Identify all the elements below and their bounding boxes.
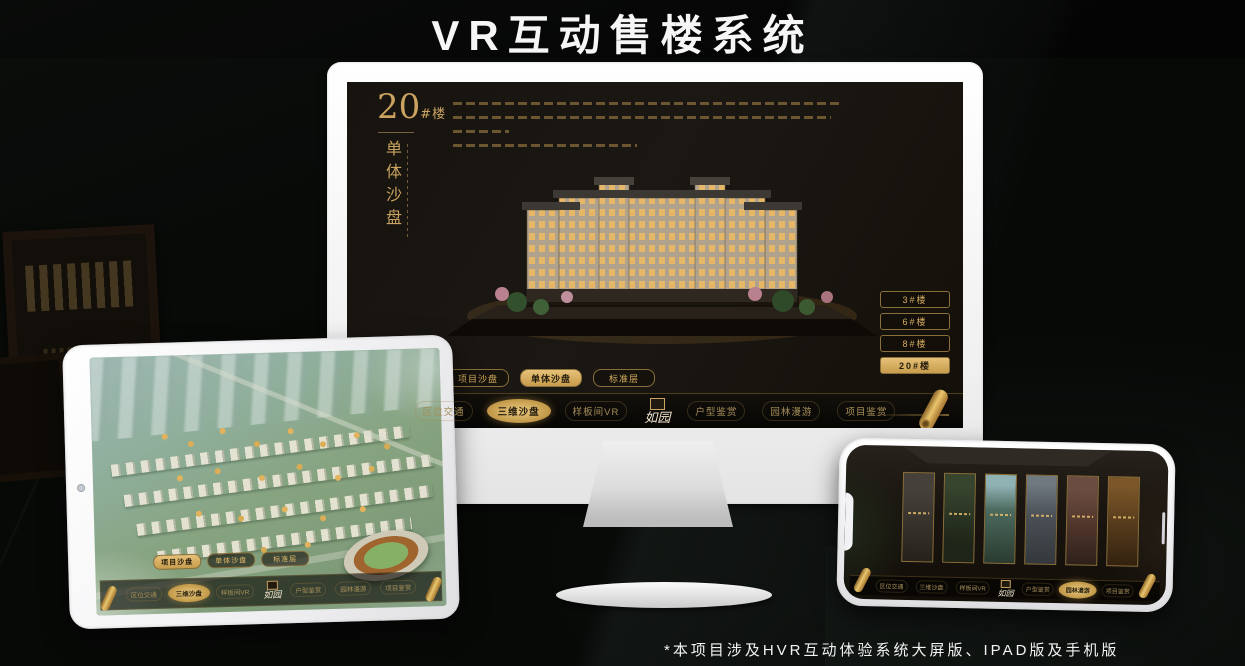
heading-rule xyxy=(378,132,414,133)
nav-item-3d-sandbox[interactable]: 三维沙盘 xyxy=(171,586,207,601)
floor-button-group: 3#楼 6#楼 8#楼 20#楼 xyxy=(880,291,950,374)
tablet-tab-single-sandbox[interactable]: 单体沙盘 xyxy=(207,552,255,568)
phone-notch xyxy=(844,493,853,551)
tablet-device: 项目沙盘 单体沙盘 标准层 区位交通 三维沙盘 样板间VR 如园 户型鉴赏 园林… xyxy=(62,335,460,630)
gallery-card-livingroom[interactable] xyxy=(942,473,976,564)
gallery-card-facade[interactable] xyxy=(1065,475,1099,566)
nav-item-garden-tour[interactable]: 园林漫游 xyxy=(762,401,820,421)
floor-button-3[interactable]: 3#楼 xyxy=(880,291,950,308)
seal-icon xyxy=(1001,579,1011,587)
tablet-screen: 项目沙盘 单体沙盘 标准层 区位交通 三维沙盘 样板间VR 如园 户型鉴赏 园林… xyxy=(89,348,446,616)
gallery-card-interior[interactable] xyxy=(901,472,935,563)
tab-standard-floor[interactable]: 标准层 xyxy=(593,369,655,387)
nav-item-showroom-vr[interactable]: 样板间VR xyxy=(955,581,990,595)
gallery-card-building[interactable] xyxy=(1024,474,1058,565)
building-heading: 20#楼 xyxy=(377,90,446,124)
floor-button-8[interactable]: 8#楼 xyxy=(880,335,950,352)
brand-logo: 如园 xyxy=(263,580,282,600)
heading-vertical-line xyxy=(407,144,408,240)
nav-item-location[interactable]: 区位交通 xyxy=(415,401,473,421)
building-render xyxy=(447,134,877,370)
poster: VR互动售楼系统 20#楼 单体沙盘 xyxy=(0,0,1245,666)
brand-logo: 如园 xyxy=(644,398,670,425)
mode-tab-group: 项目沙盘 单体沙盘 标准层 xyxy=(447,369,655,387)
brand-logo: 如园 xyxy=(998,579,1014,597)
page-title: VR互动售楼系统 xyxy=(0,2,1245,63)
nav-item-unit-gallery[interactable]: 户型鉴赏 xyxy=(1022,582,1054,596)
nav-item-project-gallery[interactable]: 项目鉴赏 xyxy=(837,401,895,421)
nav-item-project-gallery[interactable]: 项目鉴赏 xyxy=(380,580,416,595)
nav-item-showroom-vr[interactable]: 样板间VR xyxy=(216,584,255,599)
gallery-card-garden[interactable] xyxy=(983,474,1017,565)
nav-item-unit-gallery[interactable]: 户型鉴赏 xyxy=(290,582,326,597)
tab-project-sandbox[interactable]: 项目沙盘 xyxy=(447,369,509,387)
monitor-stand-base xyxy=(556,582,772,608)
tablet-tab-project-sandbox[interactable]: 项目沙盘 xyxy=(153,554,201,570)
phone-device: 区位交通 三维沙盘 样板间VR 如园 户型鉴赏 园林漫游 项目鉴赏 xyxy=(836,438,1175,613)
tablet-nav-bar: 区位交通 三维沙盘 样板间VR 如园 户型鉴赏 园林漫游 项目鉴赏 xyxy=(100,571,443,611)
nav-item-location[interactable]: 区位交通 xyxy=(126,587,162,602)
gallery-card-shelf[interactable] xyxy=(1106,476,1140,567)
seal-icon xyxy=(267,581,278,590)
tablet-tab-standard-floor[interactable]: 标准层 xyxy=(261,551,309,567)
nav-item-garden-tour[interactable]: 园林漫游 xyxy=(335,581,371,596)
phone-screen: 区位交通 三维沙盘 样板间VR 如园 户型鉴赏 园林漫游 项目鉴赏 xyxy=(843,445,1168,606)
monitor-stand xyxy=(583,441,733,527)
nav-item-garden-tour[interactable]: 园林漫游 xyxy=(1062,583,1094,597)
tab-single-sandbox[interactable]: 单体沙盘 xyxy=(520,369,582,387)
nav-item-showroom-vr[interactable]: 样板间VR xyxy=(565,401,628,421)
heading-subtitle: 单体沙盘 xyxy=(380,140,404,232)
nav-item-3d-sandbox[interactable]: 三维沙盘 xyxy=(490,401,548,421)
nav-item-location[interactable]: 区位交通 xyxy=(875,579,907,593)
floor-button-6[interactable]: 6#楼 xyxy=(880,313,950,330)
seal-icon xyxy=(650,398,665,410)
building-number-badges xyxy=(162,434,168,440)
floor-button-20[interactable]: 20#楼 xyxy=(880,357,950,374)
nav-item-project-gallery[interactable]: 项目鉴赏 xyxy=(1102,584,1134,598)
scene-gallery xyxy=(901,472,1140,567)
nav-item-3d-sandbox[interactable]: 三维沙盘 xyxy=(915,580,947,594)
nav-item-unit-gallery[interactable]: 户型鉴赏 xyxy=(687,401,745,421)
footnote: *本项目涉及HVR互动体验系统大屏版、IPAD版及手机版 xyxy=(664,639,1119,660)
